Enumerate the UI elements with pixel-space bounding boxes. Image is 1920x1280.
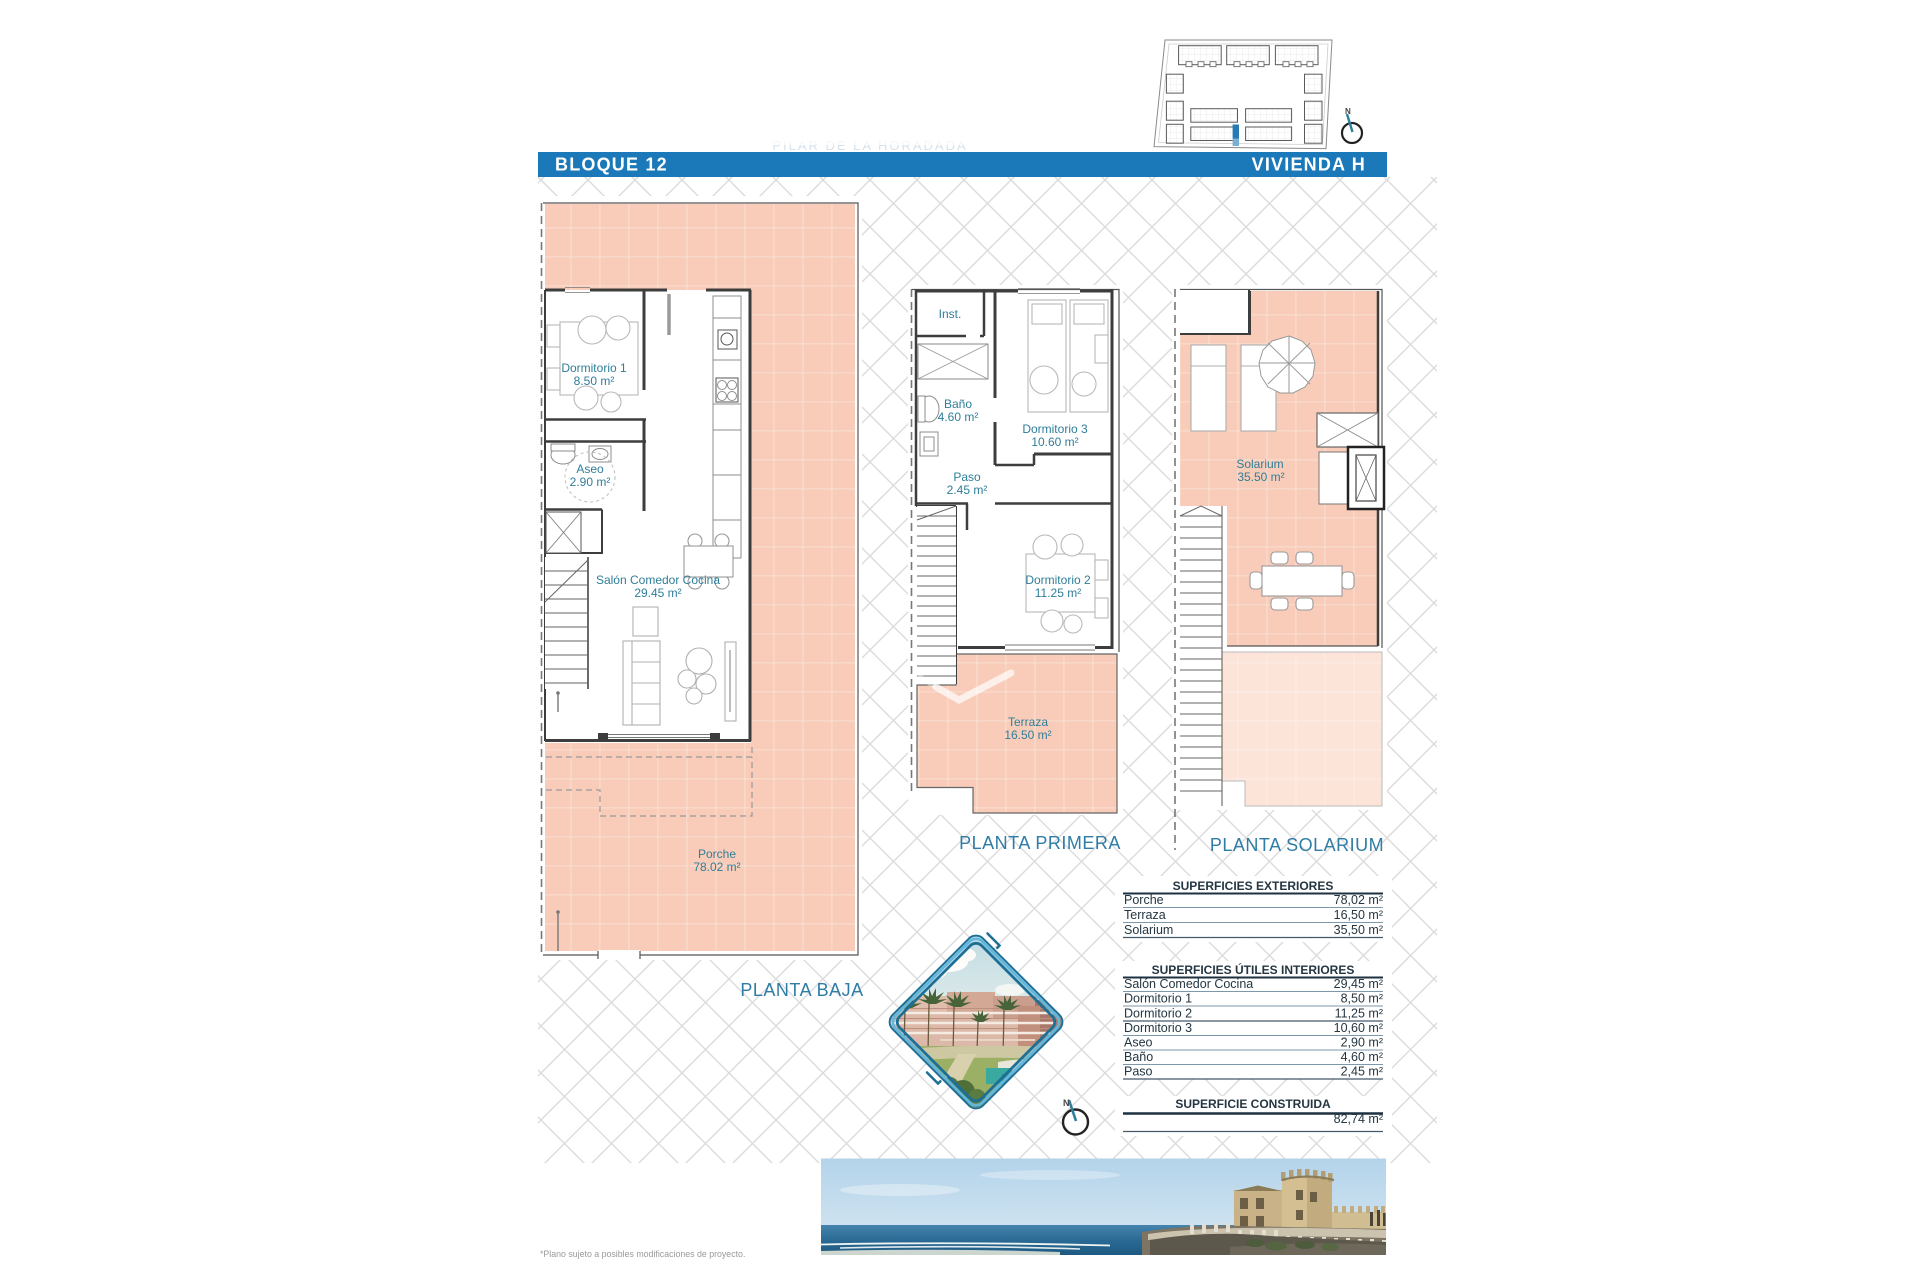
svg-text:29.45 m²: 29.45 m²: [634, 586, 681, 600]
svg-text:PLANTA PRIMERA: PLANTA PRIMERA: [959, 833, 1121, 853]
svg-text:Solarium: Solarium: [1124, 923, 1173, 937]
svg-text:8.50 m²: 8.50 m²: [574, 374, 615, 388]
svg-text:2.45 m²: 2.45 m²: [947, 483, 988, 497]
svg-text:PLANTA BAJA: PLANTA BAJA: [740, 980, 863, 1000]
svg-text:16,50 m²: 16,50 m²: [1334, 908, 1383, 922]
svg-text:Baño: Baño: [944, 397, 972, 411]
svg-text:PLANTA SOLARIUM: PLANTA SOLARIUM: [1210, 835, 1384, 855]
svg-text:Porche: Porche: [698, 847, 736, 861]
svg-text:SUPERFICIES EXTERIORES: SUPERFICIES EXTERIORES: [1173, 879, 1334, 893]
svg-text:Porche: Porche: [1124, 893, 1164, 907]
svg-text:8,50 m²: 8,50 m²: [1341, 992, 1383, 1006]
svg-text:Dormitorio 3: Dormitorio 3: [1022, 422, 1088, 436]
svg-text:2,45 m²: 2,45 m²: [1341, 1065, 1383, 1079]
svg-text:Baño: Baño: [1124, 1050, 1153, 1064]
svg-text:78,02 m²: 78,02 m²: [1334, 893, 1383, 907]
svg-text:35.50 m²: 35.50 m²: [1237, 470, 1284, 484]
svg-text:Dormitorio 1: Dormitorio 1: [561, 361, 627, 375]
svg-text:Aseo: Aseo: [1124, 1036, 1153, 1050]
svg-text:2,90 m²: 2,90 m²: [1341, 1036, 1383, 1050]
svg-text:Terraza: Terraza: [1124, 908, 1166, 922]
svg-text:29,45 m²: 29,45 m²: [1334, 977, 1383, 991]
svg-text:*Plano sujeto a posibles modif: *Plano sujeto a posibles modificaciones …: [540, 1249, 745, 1259]
svg-text:11,25 m²: 11,25 m²: [1335, 1007, 1383, 1021]
svg-text:Salón Comedor Cocina: Salón Comedor Cocina: [1124, 977, 1253, 991]
svg-text:4.60 m²: 4.60 m²: [938, 410, 979, 424]
svg-text:11.25 m²: 11.25 m²: [1035, 586, 1081, 600]
svg-text:SUPERFICIES ÚTILES INTERIORES: SUPERFICIES ÚTILES INTERIORES: [1152, 962, 1355, 977]
svg-text:Dormitorio 2: Dormitorio 2: [1124, 1007, 1192, 1021]
svg-text:16.50 m²: 16.50 m²: [1004, 728, 1051, 742]
svg-text:82,74 m²: 82,74 m²: [1334, 1112, 1383, 1126]
svg-text:Solarium: Solarium: [1236, 457, 1283, 471]
svg-text:BLOQUE 12: BLOQUE 12: [555, 155, 668, 175]
svg-text:N: N: [1345, 107, 1351, 116]
svg-text:Paso: Paso: [1124, 1065, 1153, 1079]
svg-text:Inst.: Inst.: [939, 307, 962, 321]
svg-text:Dormitorio 1: Dormitorio 1: [1124, 992, 1192, 1006]
svg-text:Aseo: Aseo: [576, 462, 604, 476]
svg-text:Dormitorio 2: Dormitorio 2: [1025, 573, 1091, 587]
svg-text:Dormitorio 3: Dormitorio 3: [1124, 1021, 1192, 1035]
svg-text:SUPERFICIE CONSTRUIDA: SUPERFICIE CONSTRUIDA: [1175, 1097, 1331, 1111]
svg-text:78.02 m²: 78.02 m²: [693, 860, 740, 874]
svg-text:Paso: Paso: [953, 470, 981, 484]
svg-text:N: N: [1063, 1098, 1070, 1108]
svg-text:4,60 m²: 4,60 m²: [1341, 1050, 1383, 1064]
svg-text:Salón Comedor Cocina: Salón Comedor Cocina: [596, 573, 720, 587]
svg-text:35,50 m²: 35,50 m²: [1334, 923, 1383, 937]
svg-text:10,60 m²: 10,60 m²: [1334, 1021, 1383, 1035]
svg-text:2.90 m²: 2.90 m²: [570, 475, 611, 489]
svg-text:Terraza: Terraza: [1008, 715, 1048, 729]
svg-text:VIVIENDA H: VIVIENDA H: [1252, 155, 1366, 175]
svg-text:10.60 m²: 10.60 m²: [1031, 435, 1078, 449]
